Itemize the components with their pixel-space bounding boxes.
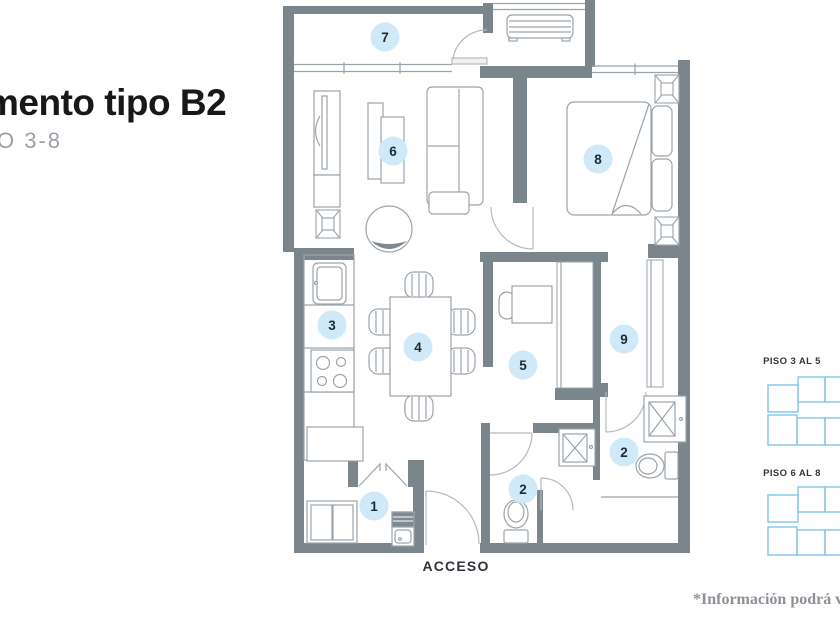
page-subtitle: O 3-8 [0, 128, 62, 154]
kitchen-sink [313, 263, 346, 304]
svg-text:2: 2 [519, 482, 527, 497]
room-marker: 5 [509, 351, 538, 380]
page-title: mento tipo B2 [0, 82, 226, 124]
bed [567, 102, 672, 215]
floor-key-label-piso-3-5: PISO 3 AL 5 [737, 356, 840, 367]
nightstand [655, 75, 679, 103]
svg-text:4: 4 [414, 340, 422, 355]
room-marker: 9 [610, 325, 639, 354]
room-marker: 2 [610, 438, 639, 467]
stove [311, 350, 354, 392]
svg-text:7: 7 [381, 30, 389, 45]
furniture [304, 15, 686, 546]
room-marker: 8 [584, 145, 613, 174]
svg-text:2: 2 [620, 445, 628, 460]
floor-key-diagrams [768, 377, 840, 555]
side-table [316, 210, 340, 238]
acceso-label: ACCESO [401, 558, 511, 574]
svg-text:5: 5 [519, 358, 527, 373]
tv-unit [314, 91, 340, 207]
washing-machine [507, 15, 573, 41]
floor-key-label-piso-6-8: PISO 6 AL 8 [737, 468, 840, 479]
svg-text:8: 8 [594, 152, 602, 167]
floorplan-page: 7683459221 mento tipo B2 O 3-8 ACCESO PI… [0, 0, 840, 630]
room-marker: 2 [509, 475, 538, 504]
nightstand [655, 217, 679, 245]
svg-text:6: 6 [389, 144, 397, 159]
svg-text:9: 9 [620, 332, 628, 347]
room-marker: 3 [318, 311, 347, 340]
floor-key-piso-3-5 [768, 377, 840, 445]
svg-text:1: 1 [370, 499, 378, 514]
round-chair [366, 206, 412, 252]
room-marker: 4 [404, 333, 433, 362]
room-marker: 7 [371, 23, 400, 52]
floor-key-piso-6-8 [768, 487, 840, 555]
footnote: *Información podrá va [693, 591, 840, 609]
closet [647, 260, 663, 387]
room-marker: 1 [360, 492, 389, 521]
room-marker: 6 [379, 137, 408, 166]
svg-text:3: 3 [328, 318, 336, 333]
sofa [427, 87, 483, 214]
fridge [307, 427, 363, 461]
